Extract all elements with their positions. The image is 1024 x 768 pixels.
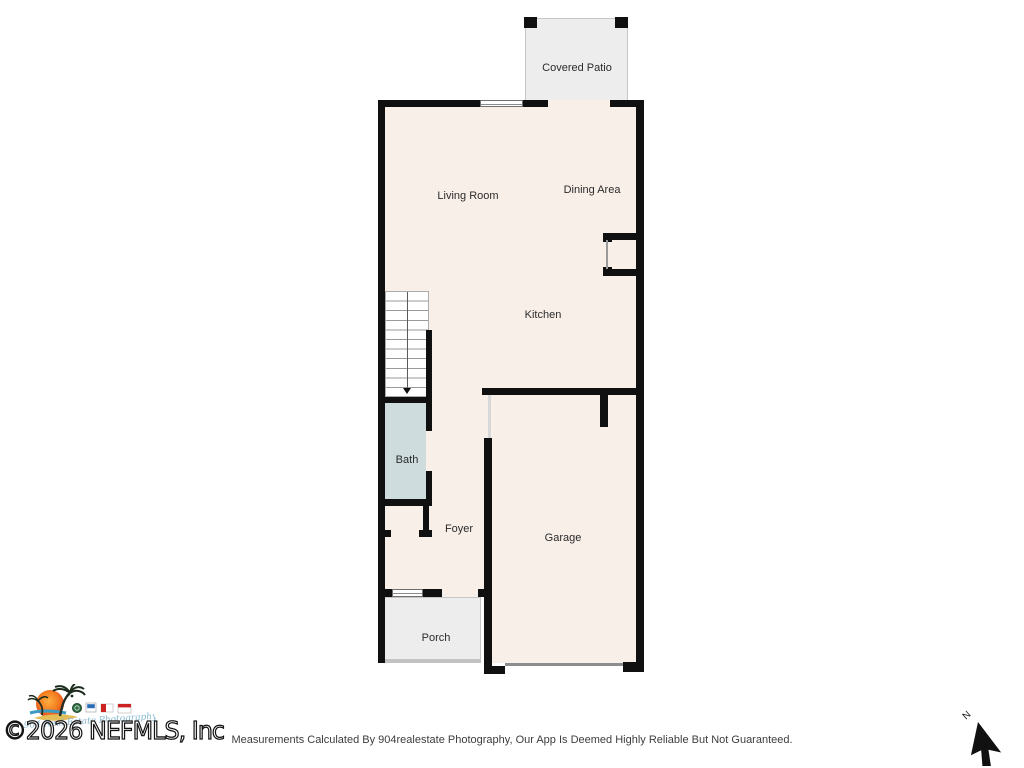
wall-stair-right	[426, 330, 432, 403]
wall-kitchen-garage	[482, 388, 644, 395]
wall-closet-stub-left	[383, 530, 391, 537]
wall-bath-top	[384, 397, 432, 403]
room-label-kitchen: Kitchen	[525, 309, 562, 321]
measurement-disclaimer-text: Measurements Calculated By 904realestate…	[0, 734, 1024, 746]
room-label-porch: Porch	[422, 632, 451, 644]
floor-plan-canvas: Covered Patio Living Room Dining Area Ki…	[0, 0, 1024, 768]
green-badge-icon	[73, 704, 82, 713]
patio-doorway-floor	[548, 100, 610, 107]
staircase-center-line	[407, 292, 408, 388]
wall-top-mid	[523, 100, 548, 107]
porch-window	[392, 589, 423, 597]
room-label-foyer: Foyer	[445, 523, 473, 535]
room-label-covered-patio: Covered Patio	[542, 62, 612, 74]
wall-front-left	[381, 589, 392, 597]
wall-front-right	[478, 589, 492, 597]
room-label-garage: Garage	[545, 532, 582, 544]
garage-door-line	[505, 663, 623, 666]
living-room-window	[480, 100, 523, 107]
north-label: N	[961, 709, 974, 722]
wall-garage-corner-right	[623, 662, 644, 672]
front-doorway-floor	[442, 589, 478, 597]
covered-patio-area	[525, 18, 628, 101]
wall-kitchen-stub	[600, 395, 608, 427]
stair-direction-arrow-icon	[403, 388, 411, 394]
wall-closet-cap-right	[419, 530, 432, 537]
porch-edge-line	[383, 660, 481, 663]
wall-bath-bottom	[384, 499, 429, 506]
north-arrow-icon: N	[952, 700, 1014, 766]
wall-garage-left	[484, 438, 492, 674]
garage-floor-area	[492, 589, 636, 663]
wall-garage-foot-left	[484, 666, 505, 674]
room-label-dining-area: Dining Area	[564, 184, 621, 196]
wall-top-left	[378, 100, 480, 107]
staircase	[385, 291, 429, 397]
room-label-living-room: Living Room	[437, 190, 498, 202]
patio-post	[615, 17, 628, 28]
wall-front-mid	[423, 589, 442, 597]
bath-floor-area	[385, 403, 426, 499]
wall-bath-right-upper	[426, 403, 432, 431]
garage-door-jamb-line	[488, 395, 491, 438]
room-label-bath: Bath	[396, 454, 419, 466]
wall-right-exterior	[636, 100, 644, 672]
certification-badge-icons	[73, 703, 132, 713]
porch-area	[385, 597, 481, 660]
niche-door-line	[606, 240, 608, 269]
patio-post	[524, 17, 537, 28]
wall-left-exterior	[378, 100, 385, 663]
